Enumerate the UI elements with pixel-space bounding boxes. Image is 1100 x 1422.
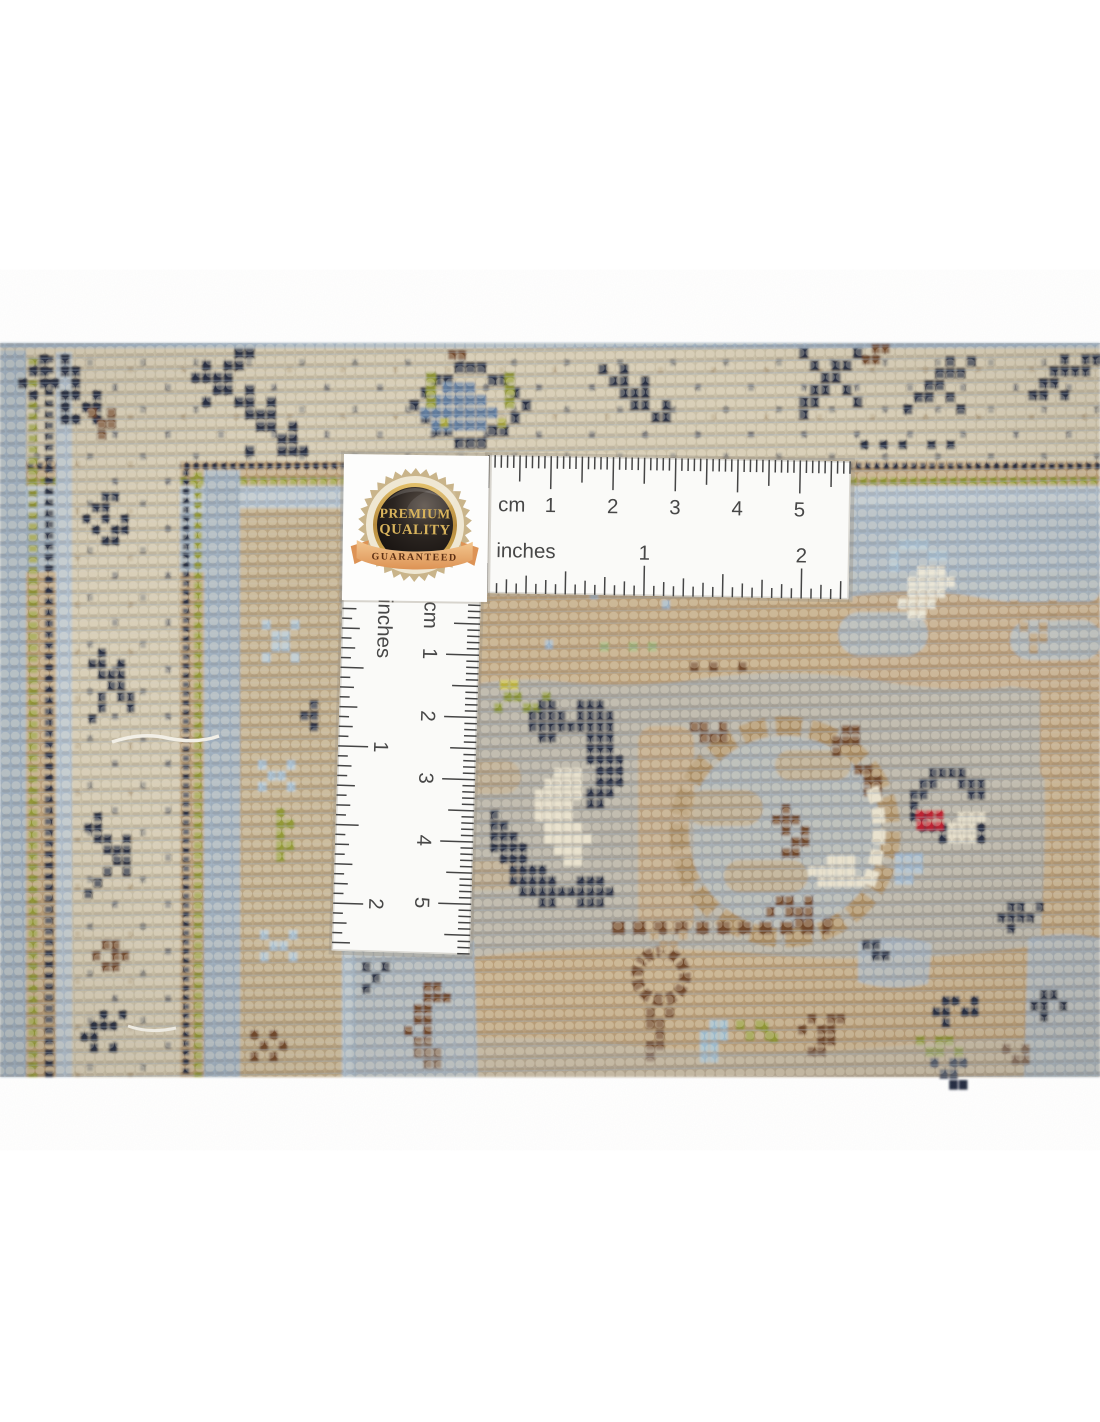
- svg-text:QUALITY: QUALITY: [379, 522, 450, 539]
- svg-text:GUARANTEED: GUARANTEED: [371, 551, 457, 563]
- svg-text:PREMIUM: PREMIUM: [380, 506, 451, 522]
